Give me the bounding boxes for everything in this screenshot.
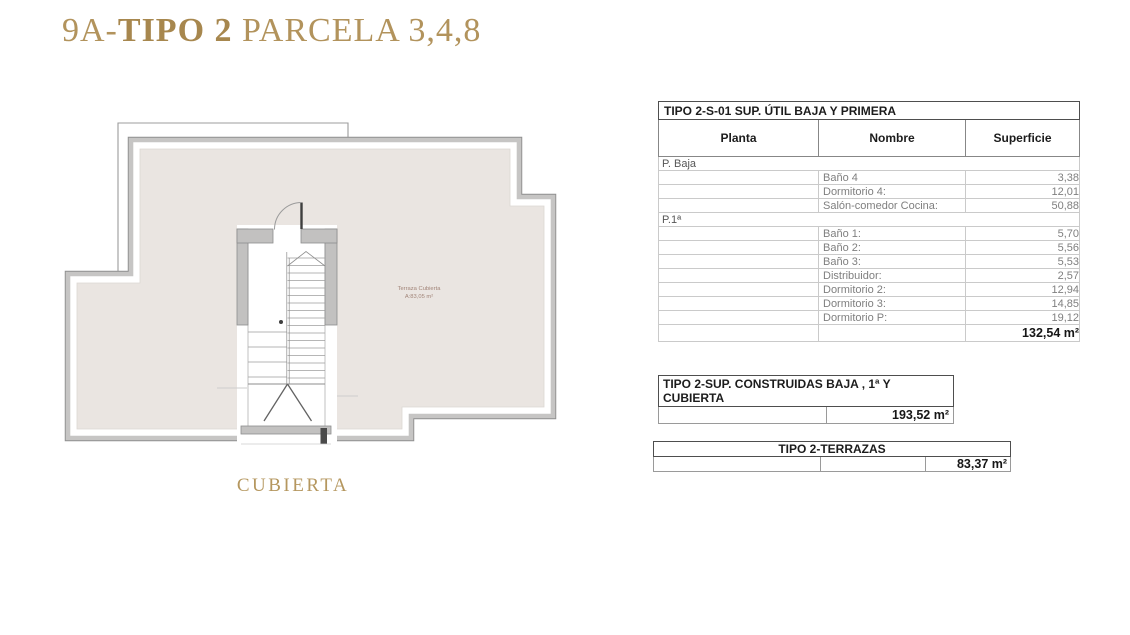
fixture-dot — [279, 320, 283, 324]
room-area: 19,12 — [966, 311, 1080, 325]
planta-row-baja: P. Baja — [659, 157, 1080, 171]
column-header-nombre: Nombre — [819, 120, 966, 157]
stair-wall-top-left — [237, 229, 273, 243]
terrazas-table: TIPO 2-TERRAZAS 83,37 m² — [653, 441, 1011, 472]
table-row: Baño 4 3,38 — [659, 171, 1080, 185]
room-area: 14,85 — [966, 297, 1080, 311]
terrazas-total-row: 83,37 m² — [654, 457, 1011, 472]
construidas-table: TIPO 2-SUP. CONSTRUIDAS BAJA , 1ª Y CUBI… — [658, 375, 954, 424]
room-name: Dormitorio P: — [819, 311, 966, 325]
room-name: Dormitorio 2: — [819, 283, 966, 297]
room-area: 5,56 — [966, 241, 1080, 255]
construidas-total-row: 193,52 m² — [659, 407, 954, 424]
column-header-superficie: Superficie — [966, 120, 1080, 157]
construidas-total-value: 193,52 m² — [827, 407, 954, 424]
room-name: Baño 3: — [819, 255, 966, 269]
util-surfaces-table: TIPO 2-S-01 SUP. ÚTIL BAJA Y PRIMERA Pla… — [658, 101, 1080, 342]
table-row: Baño 3: 5,53 — [659, 255, 1080, 269]
room-area: 50,88 — [966, 199, 1080, 213]
document-page: 9A-TIPO 2 PARCELA 3,4,8 — [0, 0, 1130, 635]
table-row: Salón-comedor Cocina: 50,88 — [659, 199, 1080, 213]
table-row: Dormitorio 2: 12,94 — [659, 283, 1080, 297]
room-name: Baño 1: — [819, 227, 966, 241]
room-area: 3,38 — [966, 171, 1080, 185]
room-area: 5,70 — [966, 227, 1080, 241]
room-name: Baño 4 — [819, 171, 966, 185]
pillar — [321, 428, 328, 444]
table-row: Dormitorio 4: 12,01 — [659, 185, 1080, 199]
room-name: Distribuidor: — [819, 269, 966, 283]
planta-row-primera: P.1ª — [659, 213, 1080, 227]
terrace-area-label-value: A:83,05 m² — [405, 294, 433, 300]
room-area: 5,53 — [966, 255, 1080, 269]
terrazas-title: TIPO 2-TERRAZAS — [654, 442, 1011, 457]
room-name: Baño 2: — [819, 241, 966, 255]
room-name: Dormitorio 4: — [819, 185, 966, 199]
room-area: 12,94 — [966, 283, 1080, 297]
table-row: Baño 1: 5,70 — [659, 227, 1080, 241]
room-name: Salón-comedor Cocina: — [819, 199, 966, 213]
construidas-title-line2: CUBIERTA — [663, 392, 949, 406]
util-total-row: 132,54 m² — [659, 325, 1080, 342]
stairwell — [217, 203, 358, 445]
table-row: Distribuidor: 2,57 — [659, 269, 1080, 283]
util-table-title: TIPO 2-S-01 SUP. ÚTIL BAJA Y PRIMERA — [659, 102, 1080, 120]
column-header-planta: Planta — [659, 120, 819, 157]
terrazas-total-value: 83,37 m² — [926, 457, 1011, 472]
room-area: 2,57 — [966, 269, 1080, 283]
table-row: Dormitorio 3: 14,85 — [659, 297, 1080, 311]
stair-wall-bottom — [241, 426, 331, 434]
table-row: Baño 2: 5,56 — [659, 241, 1080, 255]
table-row: Dormitorio P: 19,12 — [659, 311, 1080, 325]
roof-floor-plan: Terraza Cubierta A:83,05 m² — [0, 0, 640, 520]
util-total-value: 132,54 m² — [966, 325, 1080, 342]
construidas-title: TIPO 2-SUP. CONSTRUIDAS BAJA , 1ª Y CUBI… — [659, 376, 954, 407]
room-area: 12,01 — [966, 185, 1080, 199]
stair-wall-top-right — [301, 229, 337, 243]
plan-caption: CUBIERTA — [188, 475, 398, 497]
room-name: Dormitorio 3: — [819, 297, 966, 311]
terrace-area-label-name: Terraza Cubierta — [398, 286, 442, 292]
construidas-title-line1: TIPO 2-SUP. CONSTRUIDAS BAJA , 1ª Y — [663, 378, 949, 392]
